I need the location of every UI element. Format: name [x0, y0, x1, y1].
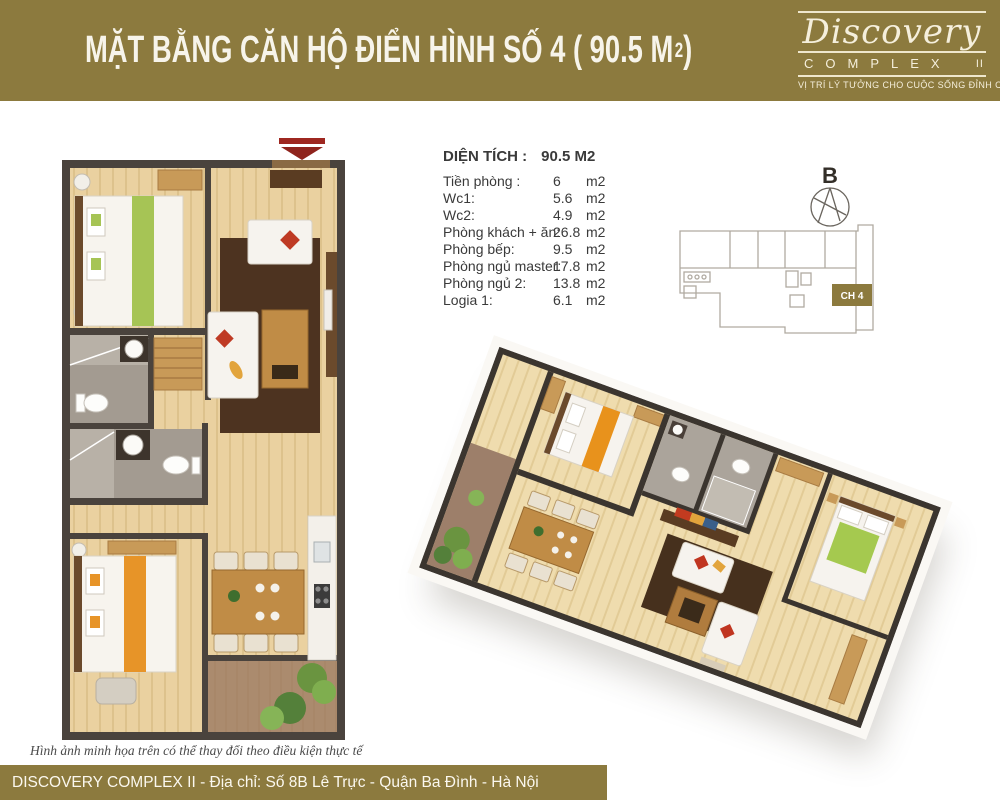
header-bar: MẶT BẰNG CĂN HỘ ĐIỂN HÌNH SỐ 4 ( 90.5 M2… [0, 0, 1000, 101]
logo-complex-row: COMPLEX II [798, 51, 986, 75]
bathroom-wc1 [70, 335, 148, 423]
row-value: 5.6 [553, 190, 586, 207]
table-row: Phòng khách + ăn:26.8m2 [443, 224, 673, 241]
floor-plan-2d [62, 160, 345, 740]
page-title-close: ) [683, 29, 692, 72]
row-unit: m2 [586, 224, 673, 241]
row-value: 6.1 [553, 292, 586, 309]
row-unit: m2 [586, 173, 673, 190]
unit-label: CH 4 [841, 291, 864, 302]
row-value: 9.5 [553, 241, 586, 258]
building-outline [680, 225, 873, 333]
row-value: 4.9 [553, 207, 586, 224]
page-title: MẶT BẰNG CĂN HỘ ĐIỂN HÌNH SỐ 4 ( 90.5 M2… [85, 0, 692, 101]
row-value: 13.8 [553, 275, 586, 292]
row-label: Phòng ngủ master: [443, 258, 553, 275]
row-unit: m2 [586, 258, 673, 275]
sofa [208, 312, 258, 398]
compass-icon [811, 188, 849, 226]
table-row: Phòng bếp:9.5m2 [443, 241, 673, 258]
area-title-label: DIỆN TÍCH : [443, 148, 527, 165]
logo-complex-word: COMPLEX [800, 56, 952, 71]
table-row: Wc1:5.6m2 [443, 190, 673, 207]
table-row: Tiền phòng :6m2 [443, 173, 673, 190]
brochure-page: MẶT BẰNG CĂN HỘ ĐIỂN HÌNH SỐ 4 ( 90.5 M2… [0, 0, 1000, 800]
floor-plan-3d [419, 347, 941, 729]
dining-table [212, 570, 304, 634]
row-unit: m2 [586, 292, 673, 309]
row-label: Tiền phòng : [443, 173, 553, 190]
row-unit: m2 [586, 207, 673, 224]
row-label: Phòng khách + ăn: [443, 224, 553, 241]
bathroom-wc2 [70, 429, 202, 498]
dining-area [212, 552, 304, 652]
row-label: Phòng bếp: [443, 241, 553, 258]
row-unit: m2 [586, 241, 673, 258]
area-table: DIỆN TÍCH :90.5 M2 Tiền phòng :6m2 Wc1:5… [443, 148, 673, 309]
armchair [96, 678, 136, 704]
row-value: 26.8 [553, 224, 586, 241]
loggia-balcony [208, 661, 337, 732]
row-label: Logia 1: [443, 292, 553, 309]
row-label: Wc2: [443, 207, 553, 224]
table-row: Wc2:4.9m2 [443, 207, 673, 224]
row-unit: m2 [586, 275, 673, 292]
hallway-closet [154, 338, 202, 390]
sofa [248, 220, 312, 264]
brand-logo: Discovery COMPLEX II VỊ TRÍ LÝ TƯỞNG CHO… [798, 11, 986, 90]
table-row: Phòng ngủ master:17.8m2 [443, 258, 673, 275]
row-label: Wc1: [443, 190, 553, 207]
area-title-value: 90.5 M2 [541, 148, 595, 165]
table-row: Phòng ngủ 2:13.8m2 [443, 275, 673, 292]
building-key-plan: B CH 4 [668, 150, 998, 340]
area-table-title: DIỆN TÍCH :90.5 M2 [443, 148, 673, 165]
footer-bar: DISCOVERY COMPLEX II - Địa chỉ: Số 8B Lê… [0, 765, 607, 800]
page-title-text: MẶT BẰNG CĂN HỘ ĐIỂN HÌNH SỐ 4 ( 90.5 M [85, 29, 673, 72]
disclaimer-note: Hình ảnh minh họa trên có thể thay đổi t… [30, 743, 362, 759]
row-value: 6 [553, 173, 586, 190]
row-value: 17.8 [553, 258, 586, 275]
logo-complex-suffix: II [976, 58, 984, 70]
table-row: Logia 1:6.1m2 [443, 292, 673, 309]
row-unit: m2 [586, 190, 673, 207]
logo-brand-name: Discovery [798, 13, 986, 51]
north-label: B [822, 163, 838, 188]
row-label: Phòng ngủ 2: [443, 275, 553, 292]
logo-tagline: VỊ TRÍ LÝ TƯỞNG CHO CUỘC SỐNG ĐỈNH CAO [798, 75, 986, 90]
entry-door [272, 160, 330, 168]
entrance-arrow-icon [278, 136, 326, 162]
footer-address: DISCOVERY COMPLEX II - Địa chỉ: Số 8B Lê… [0, 774, 539, 792]
kitchen [308, 516, 336, 660]
